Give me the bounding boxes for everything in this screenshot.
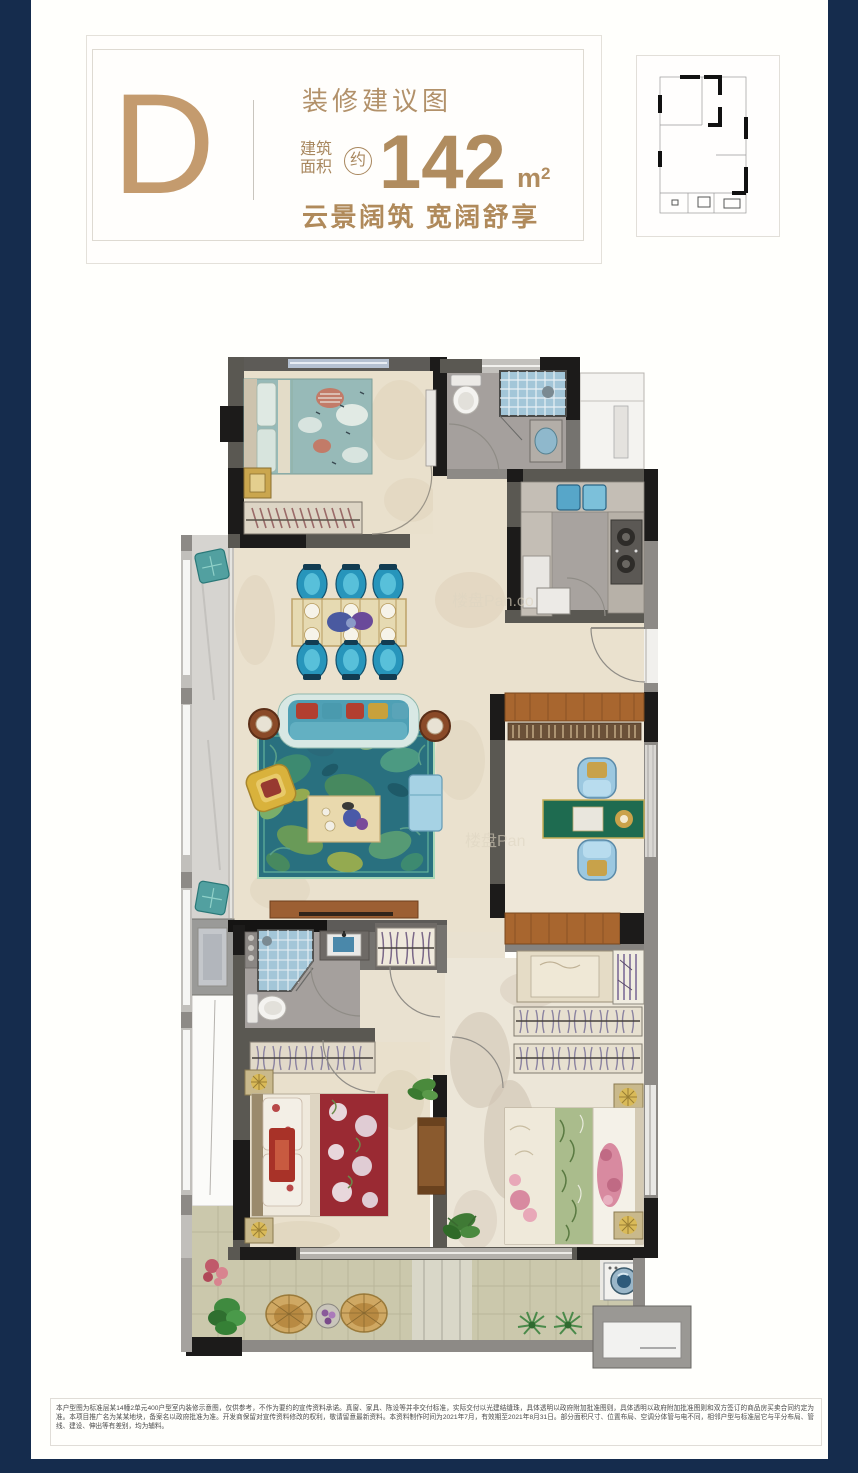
svg-text:楼盘Pan: 楼盘Pan — [465, 831, 525, 850]
svg-text:楼盘Pan.co: 楼盘Pan.co — [452, 591, 534, 610]
